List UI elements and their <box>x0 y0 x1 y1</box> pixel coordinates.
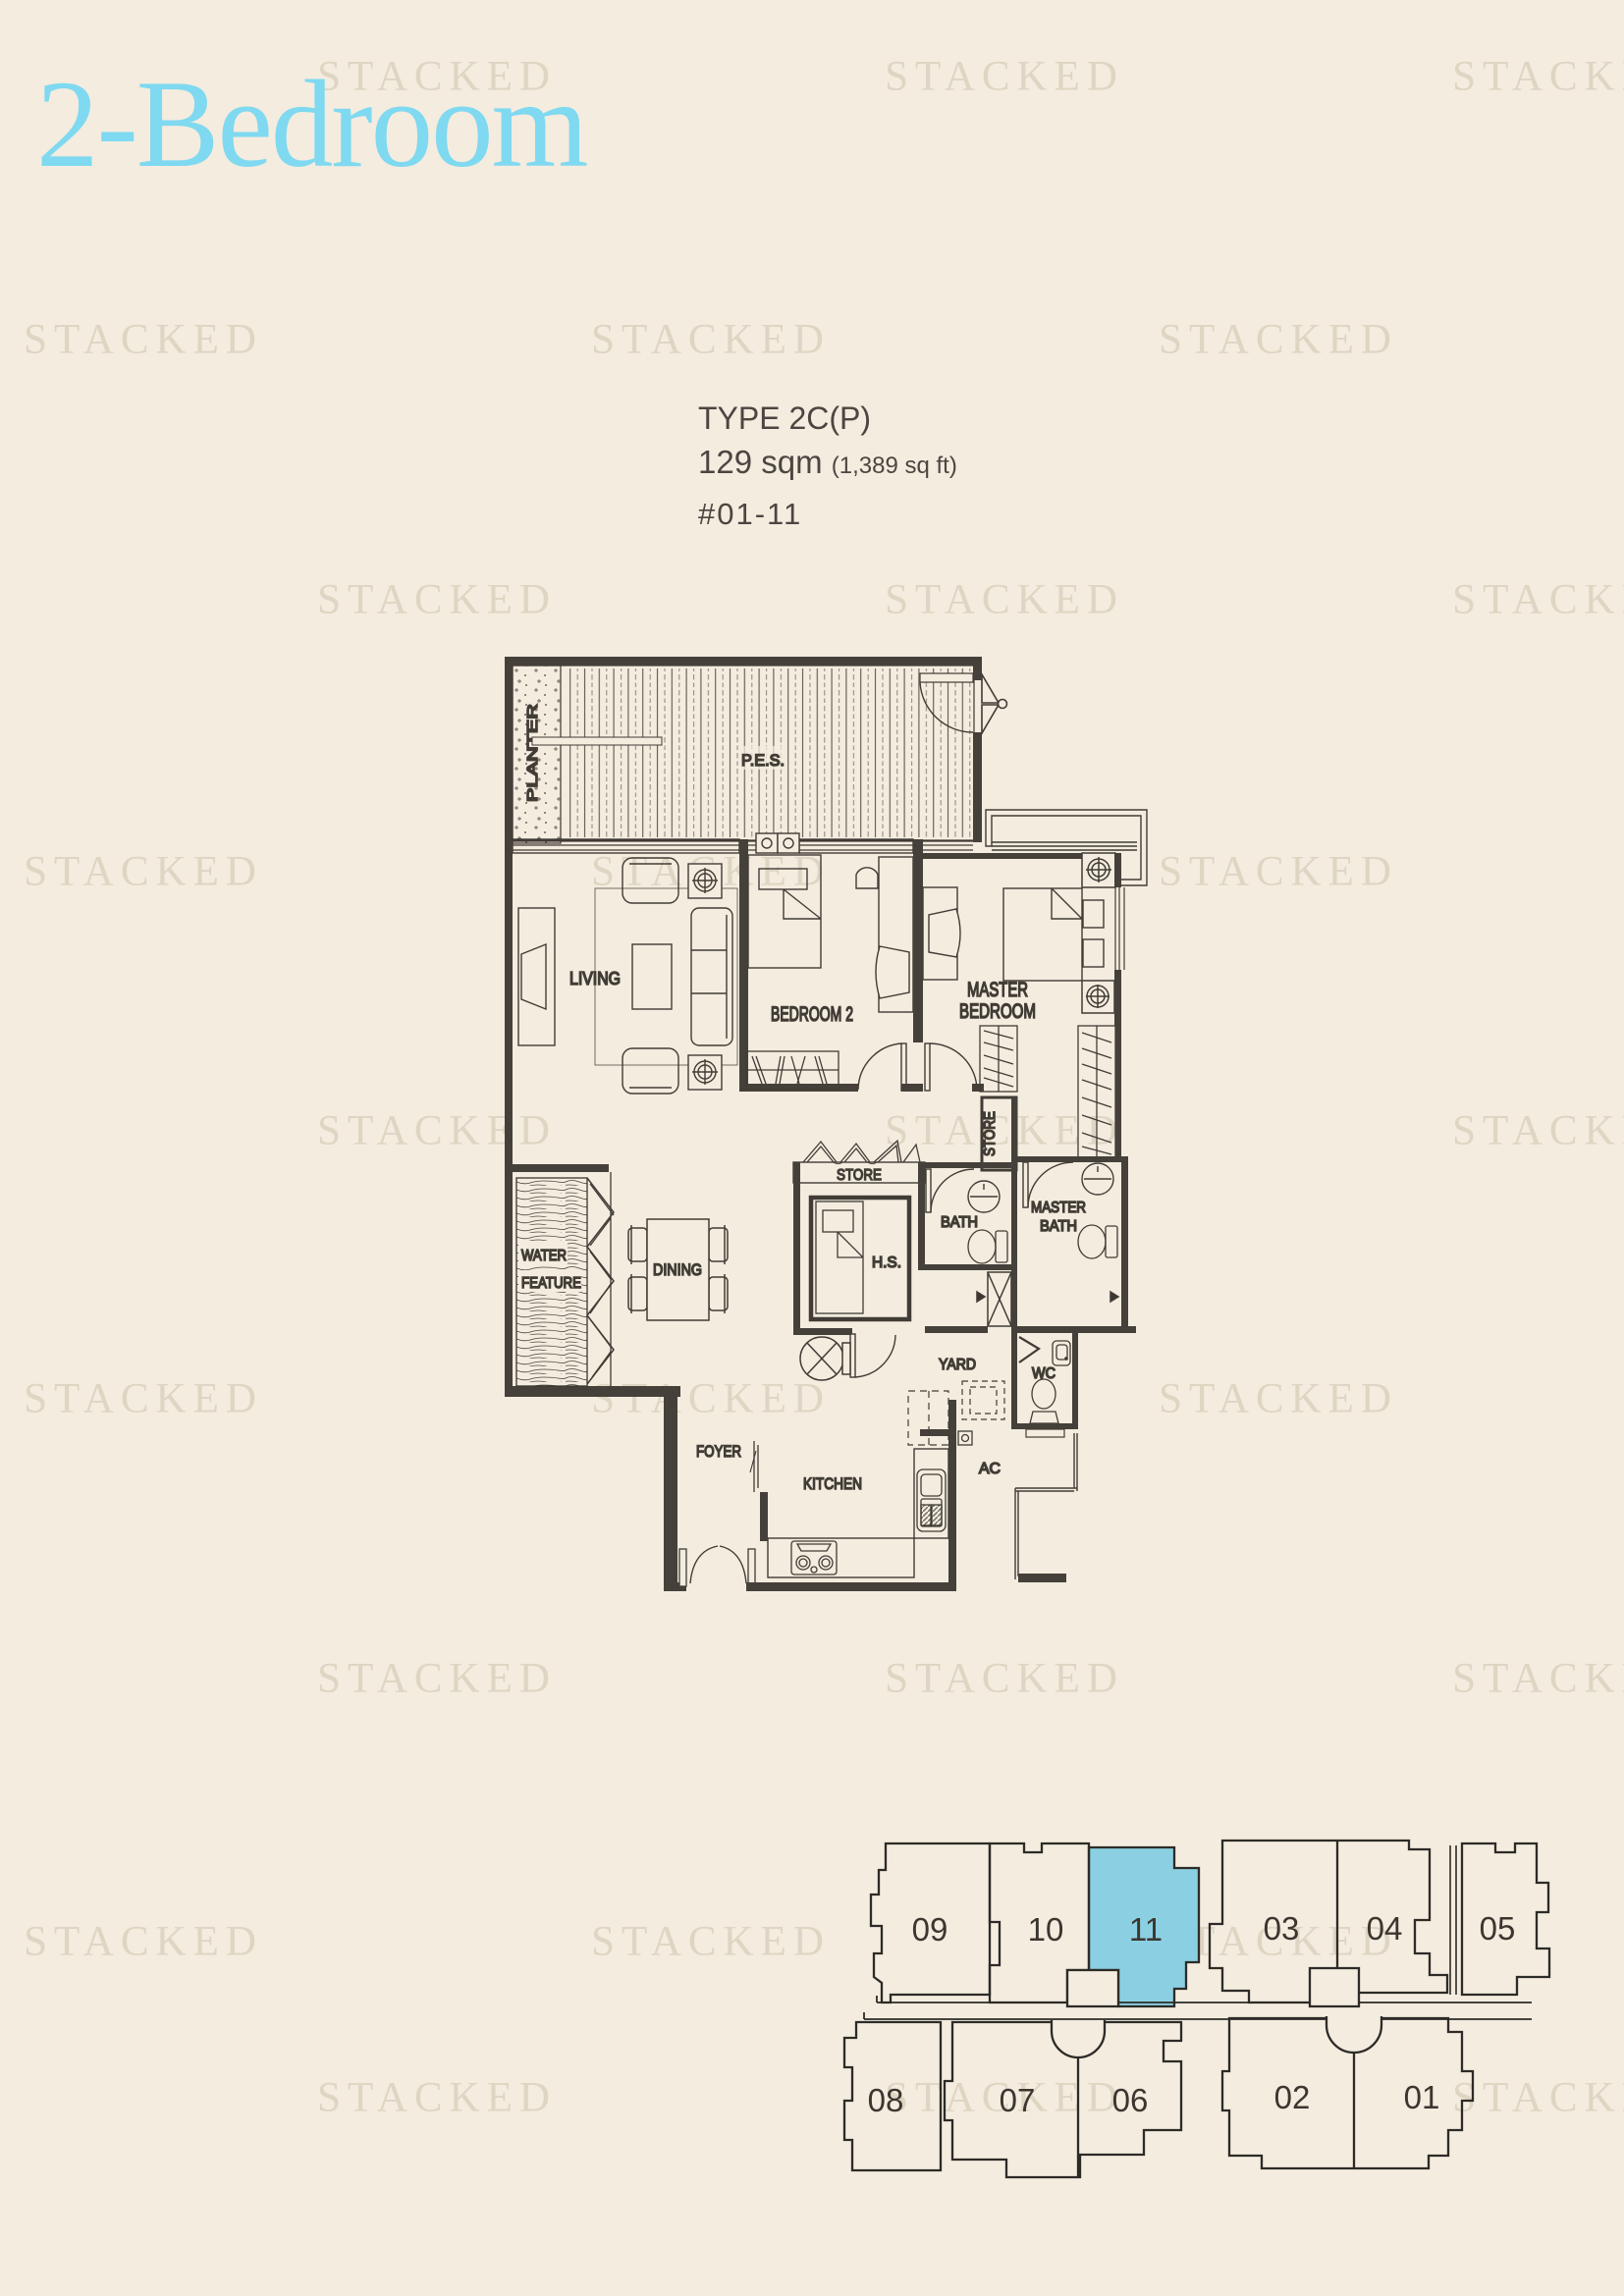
svg-text:KITCHEN: KITCHEN <box>803 1474 862 1493</box>
svg-text:WC: WC <box>1032 1365 1056 1382</box>
svg-text:07: 07 <box>1000 2082 1036 2118</box>
svg-text:09: 09 <box>912 1911 948 1948</box>
svg-text:MASTER: MASTER <box>1031 1200 1086 1216</box>
svg-text:H.S.: H.S. <box>872 1255 901 1271</box>
svg-text:BATH: BATH <box>1040 1218 1077 1235</box>
svg-text:WATER: WATER <box>521 1248 567 1264</box>
svg-text:11: 11 <box>1129 1911 1163 1948</box>
svg-text:STORE: STORE <box>837 1167 882 1184</box>
svg-text:01: 01 <box>1404 2079 1440 2115</box>
svg-text:04: 04 <box>1367 1910 1403 1947</box>
svg-text:BATH: BATH <box>941 1214 978 1231</box>
svg-text:BEDROOM: BEDROOM <box>959 1000 1036 1023</box>
svg-text:P.E.S.: P.E.S. <box>741 751 785 770</box>
svg-text:YARD: YARD <box>939 1357 976 1373</box>
svg-text:DINING: DINING <box>653 1260 702 1279</box>
svg-text:PLANTER: PLANTER <box>524 704 541 802</box>
svg-text:FOYER: FOYER <box>696 1442 741 1461</box>
svg-text:BEDROOM 2: BEDROOM 2 <box>771 1003 853 1026</box>
svg-text:STORE: STORE <box>982 1111 999 1156</box>
svg-text:10: 10 <box>1028 1911 1064 1948</box>
svg-text:LIVING: LIVING <box>569 969 621 988</box>
svg-text:06: 06 <box>1112 2082 1149 2118</box>
svg-text:03: 03 <box>1264 1910 1300 1947</box>
svg-text:05: 05 <box>1480 1910 1516 1947</box>
svg-text:02: 02 <box>1274 2079 1311 2115</box>
svg-text:AC: AC <box>979 1461 1001 1477</box>
svg-text:08: 08 <box>868 2082 904 2118</box>
svg-text:FEATURE: FEATURE <box>521 1275 581 1292</box>
svg-text:MASTER: MASTER <box>967 979 1028 1001</box>
